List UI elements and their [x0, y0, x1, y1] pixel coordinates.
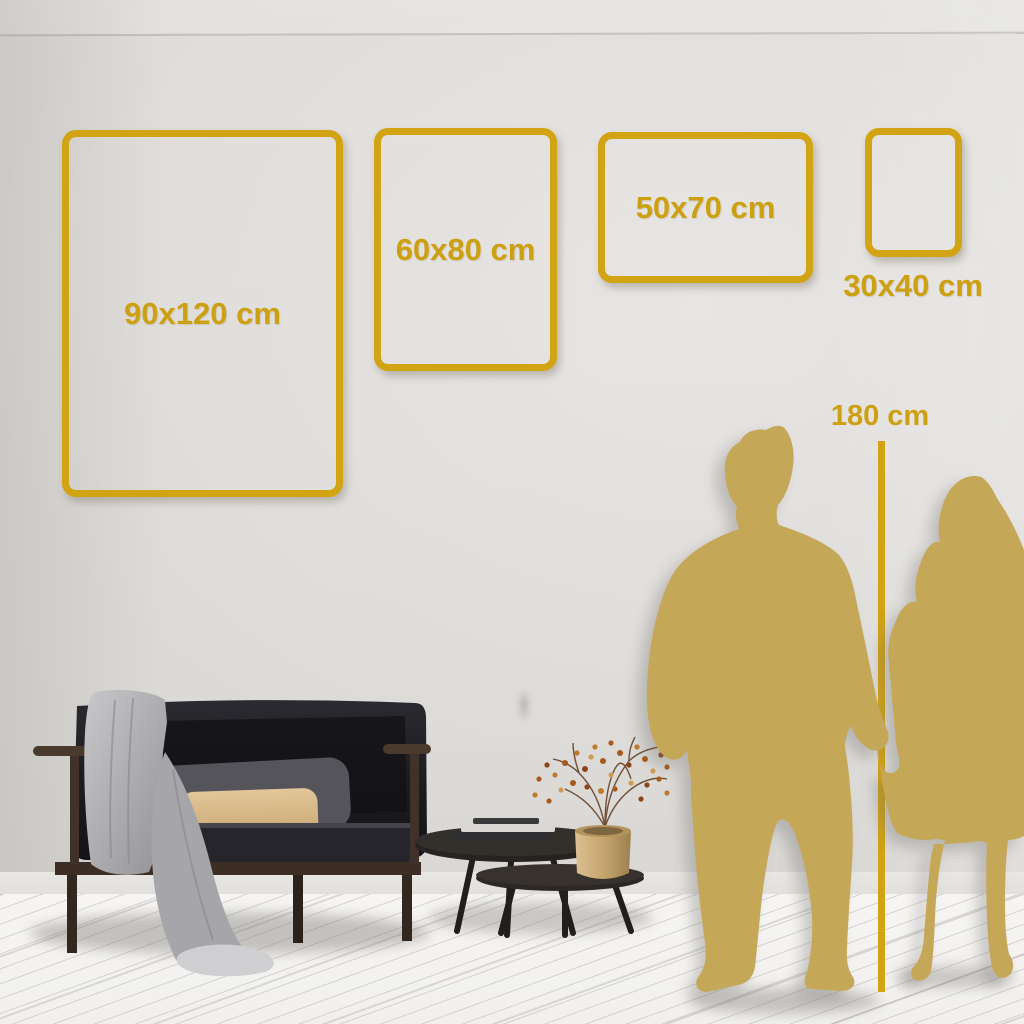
size-label-60x80: 60x80 cm [396, 232, 536, 268]
sofa-post-left [70, 752, 79, 864]
table-small-legs [501, 885, 631, 935]
books-stack [453, 818, 555, 840]
sofa-leg-front-right [402, 875, 412, 941]
sofa-illustration [15, 690, 435, 980]
sofa-leg-mid [293, 875, 303, 943]
man-silhouette-icon [647, 426, 889, 992]
size-label-30x40: 30x40 cm [833, 268, 993, 304]
size-label-90x120: 90x120 cm [124, 296, 281, 332]
size-frame-90x120: 90x120 cm [62, 130, 343, 497]
size-frame-60x80: 60x80 cm [374, 128, 557, 371]
ceiling-line [0, 32, 1024, 37]
brass-vase [575, 825, 631, 879]
couple-holding-hands-icon [640, 420, 1024, 1020]
size-label-50x70: 50x70 cm [636, 190, 776, 226]
size-guide-scene: 90x120 cm 60x80 cm 50x70 cm 30x40 cm 180… [0, 0, 1024, 1024]
sofa-leg-front-left [67, 875, 77, 953]
wall-smudge [518, 688, 530, 722]
size-frame-30x40 [865, 128, 962, 257]
blanket-floor-pool [177, 945, 274, 977]
coffee-tables-illustration [415, 735, 675, 940]
woman-silhouette-icon [877, 476, 1024, 981]
size-frame-50x70: 50x70 cm [598, 132, 813, 283]
